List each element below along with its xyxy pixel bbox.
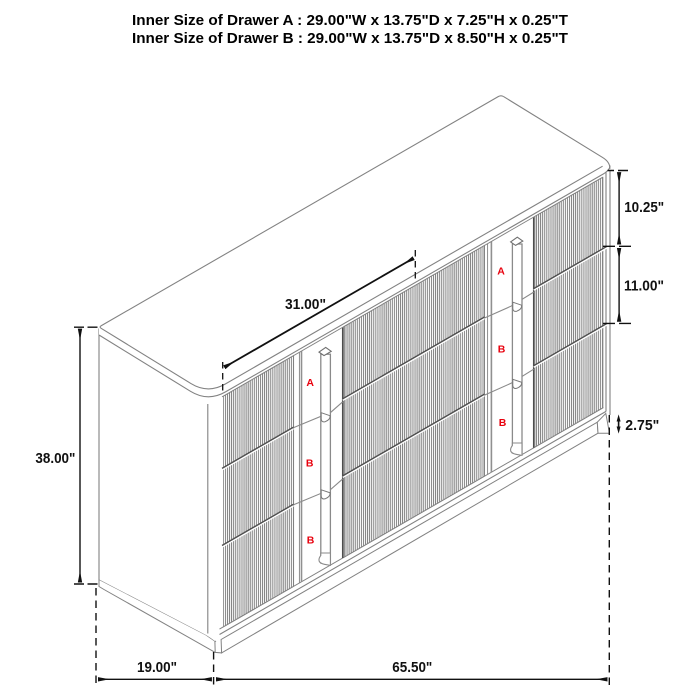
svg-text:65.50": 65.50" (392, 659, 432, 676)
svg-text:19.00": 19.00" (137, 659, 177, 676)
svg-text:B: B (306, 458, 314, 470)
svg-text:10.25": 10.25" (624, 199, 664, 216)
svg-text:Inner Size of Drawer A : 29.00: Inner Size of Drawer A : 29.00"W x 13.75… (132, 12, 569, 29)
svg-text:B: B (499, 417, 507, 429)
svg-text:A: A (497, 266, 505, 278)
svg-text:31.00": 31.00" (285, 296, 326, 313)
svg-text:38.00": 38.00" (35, 450, 75, 467)
svg-text:Inner Size of Drawer B : 29.00: Inner Size of Drawer B : 29.00"W x 13.75… (132, 30, 569, 47)
svg-text:2.75": 2.75" (625, 417, 659, 434)
svg-text:11.00": 11.00" (624, 278, 664, 295)
svg-text:A: A (306, 377, 314, 389)
svg-text:B: B (307, 534, 315, 546)
svg-text:B: B (498, 344, 506, 356)
